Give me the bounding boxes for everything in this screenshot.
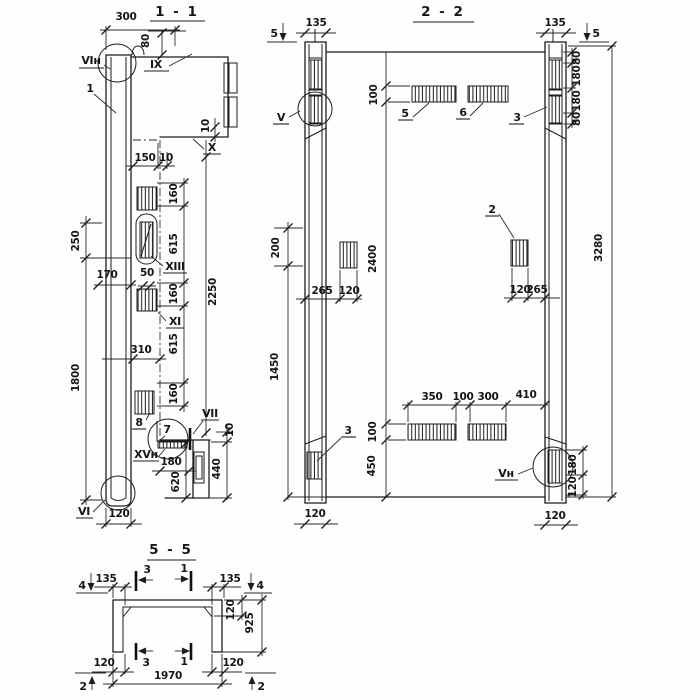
dim-120-leftmid: 120 bbox=[338, 285, 359, 297]
dim-300-row: 300 bbox=[477, 391, 498, 403]
label-7: 7 bbox=[163, 423, 170, 436]
dim-440: 440 bbox=[211, 458, 223, 479]
dim-1970: 1970 bbox=[154, 670, 182, 682]
s11-embedded-plates bbox=[135, 187, 157, 414]
dim-120-side: 120 bbox=[225, 599, 237, 620]
dim-120-botR: 120 bbox=[222, 657, 243, 669]
section-5-5: 5 - 5 bbox=[75, 542, 276, 693]
embedded-plate bbox=[309, 60, 322, 89]
label-vn: Vн bbox=[498, 467, 514, 480]
edge-embeds bbox=[224, 63, 237, 127]
dim-180a: 180 bbox=[571, 65, 583, 86]
dim-135-right: 135 bbox=[544, 17, 565, 29]
label-3-top: 3 bbox=[513, 111, 520, 124]
structural-drawing: 1 - 1 bbox=[0, 0, 700, 700]
marker-5-right: 5 bbox=[592, 27, 599, 40]
dim-160c: 160 bbox=[168, 383, 180, 404]
label-vi-top: VIн bbox=[81, 54, 100, 67]
dim-170: 170 bbox=[96, 269, 117, 281]
section-5-5-title: 5 - 5 bbox=[149, 542, 193, 558]
label-vii: VII bbox=[202, 407, 218, 420]
dim-250: 250 bbox=[70, 230, 82, 251]
s55-dim-texts: 135 135 4 4 3 1 120 925 120 120 3 1 1970… bbox=[78, 562, 264, 693]
detail-7-corner bbox=[157, 421, 189, 441]
dim-1800: 1800 bbox=[70, 364, 82, 392]
cut-label-3-top: 3 bbox=[143, 563, 150, 576]
dim-135-right: 135 bbox=[219, 573, 240, 585]
dim-180: 180 bbox=[160, 456, 181, 468]
label-xv: XVн bbox=[134, 448, 158, 461]
dim-10-bot: 10 bbox=[224, 423, 236, 437]
marker-2-left: 2 bbox=[79, 680, 86, 693]
dim-3280: 3280 bbox=[593, 234, 605, 262]
dim-10-step: 10 bbox=[159, 152, 173, 164]
label-3-bot: 3 bbox=[344, 424, 351, 437]
label-2: 2 bbox=[488, 203, 495, 216]
embedded-plate-6 bbox=[468, 86, 508, 102]
dim-135-left: 135 bbox=[95, 573, 116, 585]
dim-80b: 80 bbox=[571, 112, 583, 126]
dim-350: 350 bbox=[421, 391, 442, 403]
s55-dim-ticks bbox=[109, 583, 267, 689]
embedded-plate bbox=[549, 60, 562, 89]
dim-120-botL: 120 bbox=[93, 657, 114, 669]
s11-dim-texts: 300 80 150 10 10 250 1800 170 50 310 160… bbox=[70, 11, 236, 520]
embedded-plate bbox=[137, 187, 157, 210]
section-2-2: 2 - 2 bbox=[267, 4, 617, 530]
dim-135-left: 135 bbox=[305, 17, 326, 29]
dim-450: 450 bbox=[366, 455, 378, 476]
section-arrow-down bbox=[248, 583, 255, 591]
cut-arrow-left bbox=[138, 577, 146, 584]
dim-180-br: 180 bbox=[567, 454, 579, 475]
embedded-plate bbox=[340, 242, 357, 268]
dim-2250: 2250 bbox=[207, 278, 219, 306]
marker-4-left: 4 bbox=[78, 579, 86, 592]
label-xi: XI bbox=[169, 315, 181, 328]
dim-80a: 80 bbox=[571, 51, 583, 65]
callout-circle-vi-top bbox=[98, 44, 136, 82]
marker-4-right: 4 bbox=[256, 579, 264, 592]
dim-50: 50 bbox=[140, 267, 154, 279]
embedded-plate bbox=[135, 391, 154, 414]
dim-310: 310 bbox=[130, 344, 151, 356]
cut-label-1-bot: 1 bbox=[180, 655, 187, 668]
label-5: 5 bbox=[401, 107, 408, 120]
embedded-plate bbox=[309, 96, 322, 123]
cut-label-3-bot: 3 bbox=[142, 656, 149, 669]
dim-615a: 615 bbox=[168, 233, 180, 254]
dim-925: 925 bbox=[244, 612, 256, 633]
embedded-plate bbox=[548, 450, 562, 483]
dim-120-footL: 120 bbox=[304, 508, 325, 520]
dim-100-top: 100 bbox=[368, 84, 380, 105]
embedded-plate bbox=[408, 424, 456, 440]
marker-2-right: 2 bbox=[257, 680, 264, 693]
dim-410: 410 bbox=[515, 389, 536, 401]
embedded-plate bbox=[307, 452, 322, 479]
dim-100-row: 100 bbox=[452, 391, 473, 403]
dim-120: 120 bbox=[108, 508, 129, 520]
cut-arrow-right bbox=[181, 576, 189, 583]
dim-620: 620 bbox=[170, 471, 182, 492]
dim-180b: 180 bbox=[571, 90, 583, 111]
dim-615b: 615 bbox=[168, 333, 180, 354]
label-vi-bottom: VI bbox=[78, 505, 90, 518]
marker-5-left: 5 bbox=[270, 27, 277, 40]
dim-265-left: 265 bbox=[311, 285, 332, 297]
dim-100-bot: 100 bbox=[367, 421, 379, 442]
dim-160b: 160 bbox=[168, 283, 180, 304]
dim-80: 80 bbox=[140, 34, 152, 48]
dim-10-edge: 10 bbox=[200, 119, 212, 133]
s55-outline bbox=[113, 600, 222, 652]
dim-160a: 160 bbox=[168, 183, 180, 204]
label-xiii: XIII bbox=[165, 260, 185, 273]
dim-300: 300 bbox=[115, 11, 136, 23]
embedded-plate bbox=[137, 289, 157, 311]
dim-120-br: 120 bbox=[567, 476, 579, 497]
cut-arrow-right bbox=[182, 648, 190, 655]
s11-outline bbox=[106, 46, 237, 506]
embedded-plate bbox=[468, 424, 506, 440]
dim-120-footR: 120 bbox=[544, 510, 565, 522]
label-v: V bbox=[277, 111, 286, 124]
section-arrow-down bbox=[584, 33, 591, 41]
label-6: 6 bbox=[459, 106, 467, 119]
embedded-plate-2 bbox=[511, 240, 528, 266]
section-1-1: 1 - 1 bbox=[70, 4, 237, 529]
section-arrow-up bbox=[89, 676, 96, 684]
dim-200: 200 bbox=[270, 237, 282, 258]
s22-embedded-plates bbox=[298, 60, 573, 487]
label-ix: IX bbox=[150, 58, 163, 71]
embedded-plate bbox=[549, 96, 562, 123]
blueprint-scan: 1 - 1 bbox=[0, 0, 700, 700]
cut-arrow-left bbox=[138, 648, 146, 655]
embedded-plate-5 bbox=[412, 86, 456, 102]
label-x: X bbox=[208, 141, 217, 154]
label-8: 8 bbox=[135, 416, 142, 429]
section-1-1-title: 1 - 1 bbox=[155, 4, 199, 20]
dim-150: 150 bbox=[134, 152, 155, 164]
section-arrow-down bbox=[88, 583, 95, 591]
dim-265-right: 265 bbox=[526, 284, 547, 296]
section-arrow-down bbox=[280, 33, 287, 41]
cut-label-1-top: 1 bbox=[180, 562, 187, 575]
dim-2400: 2400 bbox=[367, 245, 379, 273]
section-arrow-up bbox=[249, 676, 256, 684]
dim-1450: 1450 bbox=[269, 353, 281, 381]
section-2-2-title: 2 - 2 bbox=[421, 4, 465, 20]
label-1: 1 bbox=[86, 82, 93, 95]
